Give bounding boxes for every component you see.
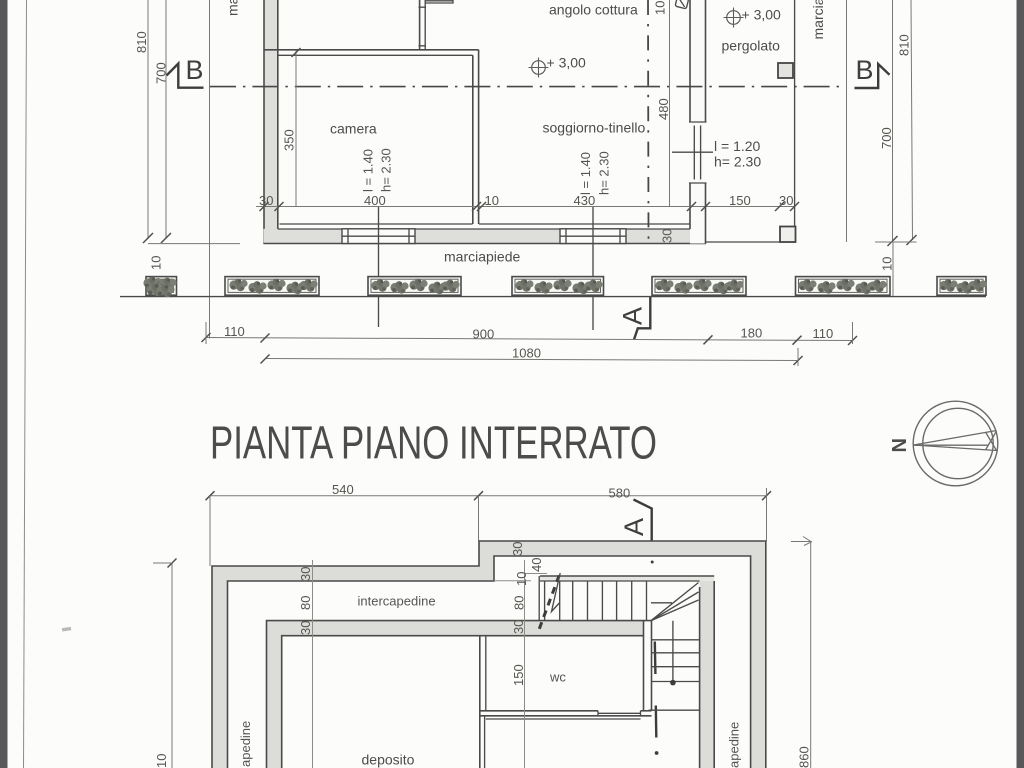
svg-text:B: B: [186, 55, 204, 85]
svg-text:180: 180: [741, 326, 763, 341]
svg-text:900: 900: [473, 327, 495, 342]
svg-text:80: 80: [512, 596, 527, 610]
svg-text:l = 1.40: l = 1.40: [578, 152, 593, 195]
svg-text:angolo cottura: angolo cottura: [549, 2, 638, 18]
svg-text:540: 540: [332, 482, 354, 497]
svg-text:+ 3,00: + 3,00: [547, 55, 587, 71]
svg-text:10: 10: [653, 1, 668, 15]
svg-text:30: 30: [259, 193, 273, 208]
svg-text:150: 150: [511, 664, 526, 686]
svg-text:110: 110: [224, 324, 245, 339]
svg-text:1080: 1080: [512, 346, 541, 361]
svg-text:860: 860: [797, 746, 812, 768]
svg-text:10: 10: [485, 193, 499, 208]
svg-text:apedine: apedine: [727, 722, 742, 768]
svg-text:+ 3,00: + 3,00: [742, 7, 782, 23]
svg-text:marciapiede: marciapiede: [225, 0, 241, 16]
svg-text:30: 30: [510, 542, 525, 556]
svg-text:apedine: apedine: [238, 721, 253, 767]
svg-text:10: 10: [149, 256, 164, 270]
svg-text:pergolato: pergolato: [722, 38, 781, 54]
svg-text:810: 810: [897, 34, 912, 56]
svg-text:700: 700: [879, 127, 894, 149]
svg-text:30: 30: [660, 229, 675, 243]
svg-text:10: 10: [880, 257, 895, 271]
svg-text:h= 2.30: h= 2.30: [379, 148, 394, 192]
svg-text:l = 1.40: l = 1.40: [361, 149, 376, 192]
svg-text:700: 700: [154, 62, 169, 84]
svg-text:marciapiede: marciapiede: [810, 0, 826, 40]
svg-text:110: 110: [813, 326, 834, 341]
svg-text:580: 580: [609, 486, 631, 501]
svg-text:30: 30: [298, 621, 313, 635]
svg-text:A: A: [619, 518, 649, 536]
svg-text:N: N: [889, 438, 911, 452]
svg-text:150: 150: [729, 193, 751, 208]
svg-text:350: 350: [282, 129, 297, 151]
svg-text:B: B: [856, 55, 874, 85]
svg-text:30: 30: [511, 620, 526, 634]
svg-text:h= 2.30: h= 2.30: [714, 154, 761, 170]
svg-text:A: A: [618, 307, 648, 325]
svg-text:30: 30: [298, 567, 313, 581]
svg-text:wc: wc: [549, 670, 566, 685]
svg-text:430: 430: [574, 193, 596, 208]
svg-text:soggiorno-tinello: soggiorno-tinello: [543, 120, 646, 136]
svg-text:10: 10: [154, 754, 169, 768]
svg-text:camera: camera: [330, 121, 377, 137]
svg-text:marciapiede: marciapiede: [444, 249, 520, 265]
svg-text:810: 810: [134, 31, 149, 53]
svg-text:30: 30: [779, 193, 793, 208]
svg-text:480: 480: [656, 98, 671, 120]
svg-text:deposito: deposito: [362, 752, 415, 768]
svg-text:40: 40: [529, 558, 544, 572]
svg-text:400: 400: [364, 193, 386, 208]
svg-text:intercapedine: intercapedine: [358, 594, 436, 609]
svg-text:PIANTA PIANO INTERRATO: PIANTA PIANO INTERRATO: [210, 417, 657, 469]
svg-text:10: 10: [514, 572, 529, 586]
svg-text:l = 1.20: l = 1.20: [714, 138, 761, 154]
svg-text:80: 80: [298, 596, 313, 610]
svg-text:h= 2.30: h= 2.30: [597, 151, 612, 195]
